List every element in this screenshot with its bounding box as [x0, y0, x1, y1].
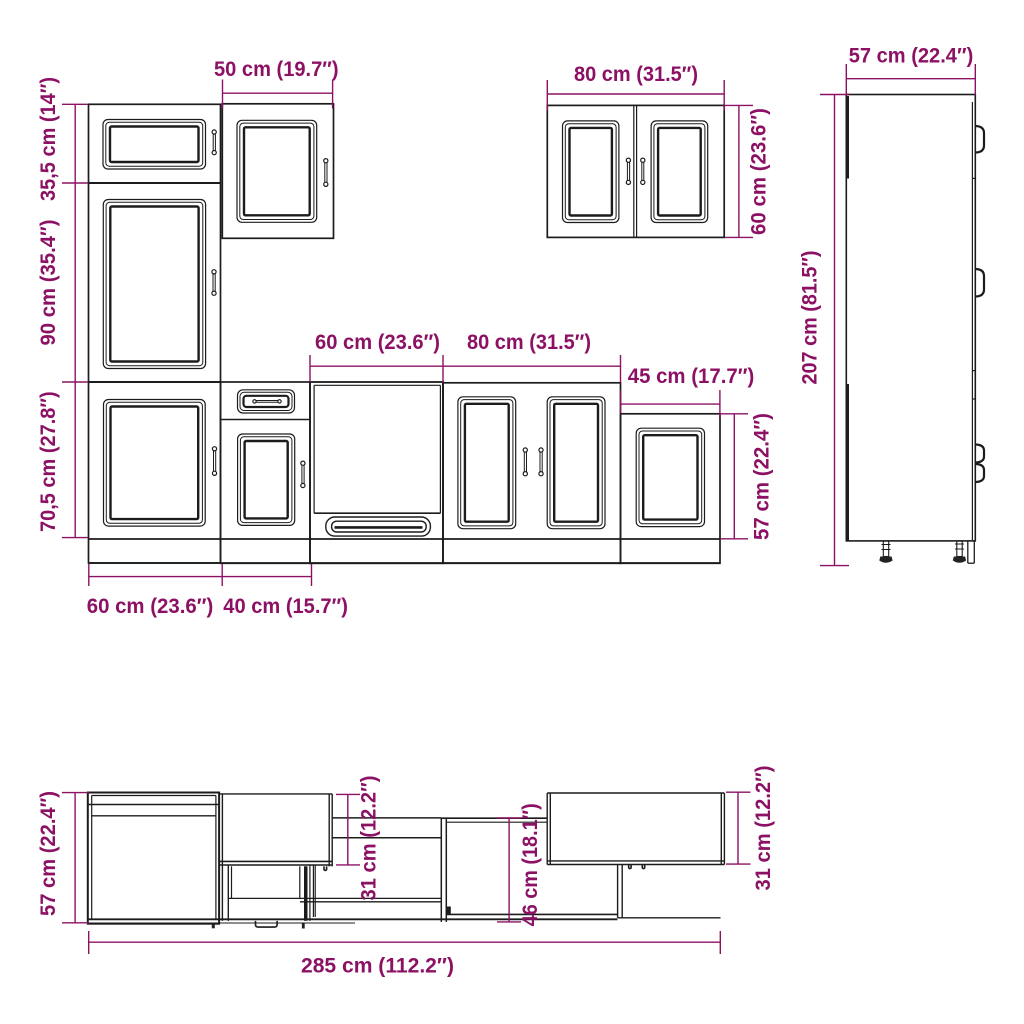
svg-text:70,5 cm (27.8″): 70,5 cm (27.8″): [37, 391, 60, 532]
svg-text:50 cm (19.7″): 50 cm (19.7″): [214, 58, 339, 81]
svg-text:60 cm (23.6″): 60 cm (23.6″): [87, 595, 214, 618]
svg-text:57 cm (22.4″): 57 cm (22.4″): [849, 45, 974, 68]
svg-text:60 cm (23.6″): 60 cm (23.6″): [748, 108, 771, 235]
svg-text:57 cm (22.4″): 57 cm (22.4″): [751, 413, 774, 540]
svg-text:40 cm (15.7″): 40 cm (15.7″): [223, 595, 348, 618]
svg-text:60 cm (23.6″): 60 cm (23.6″): [315, 331, 440, 354]
svg-text:80 cm (31.5″): 80 cm (31.5″): [467, 331, 591, 354]
svg-text:207 cm (81.5″): 207 cm (81.5″): [799, 251, 822, 385]
svg-text:35,5 cm (14″): 35,5 cm (14″): [37, 77, 60, 201]
svg-text:46 cm (18.1″): 46 cm (18.1″): [519, 803, 542, 926]
svg-text:31 cm (12.2″): 31 cm (12.2″): [752, 766, 775, 891]
svg-text:80 cm (31.5″): 80 cm (31.5″): [574, 63, 698, 86]
svg-text:57 cm (22.4″): 57 cm (22.4″): [37, 791, 60, 916]
svg-text:90 cm (35.4″): 90 cm (35.4″): [37, 220, 60, 346]
svg-text:31 cm (12.2″): 31 cm (12.2″): [358, 776, 381, 901]
svg-text:45 cm (17.7″): 45 cm (17.7″): [628, 365, 755, 388]
svg-text:285 cm (112.2″): 285 cm (112.2″): [301, 954, 454, 977]
